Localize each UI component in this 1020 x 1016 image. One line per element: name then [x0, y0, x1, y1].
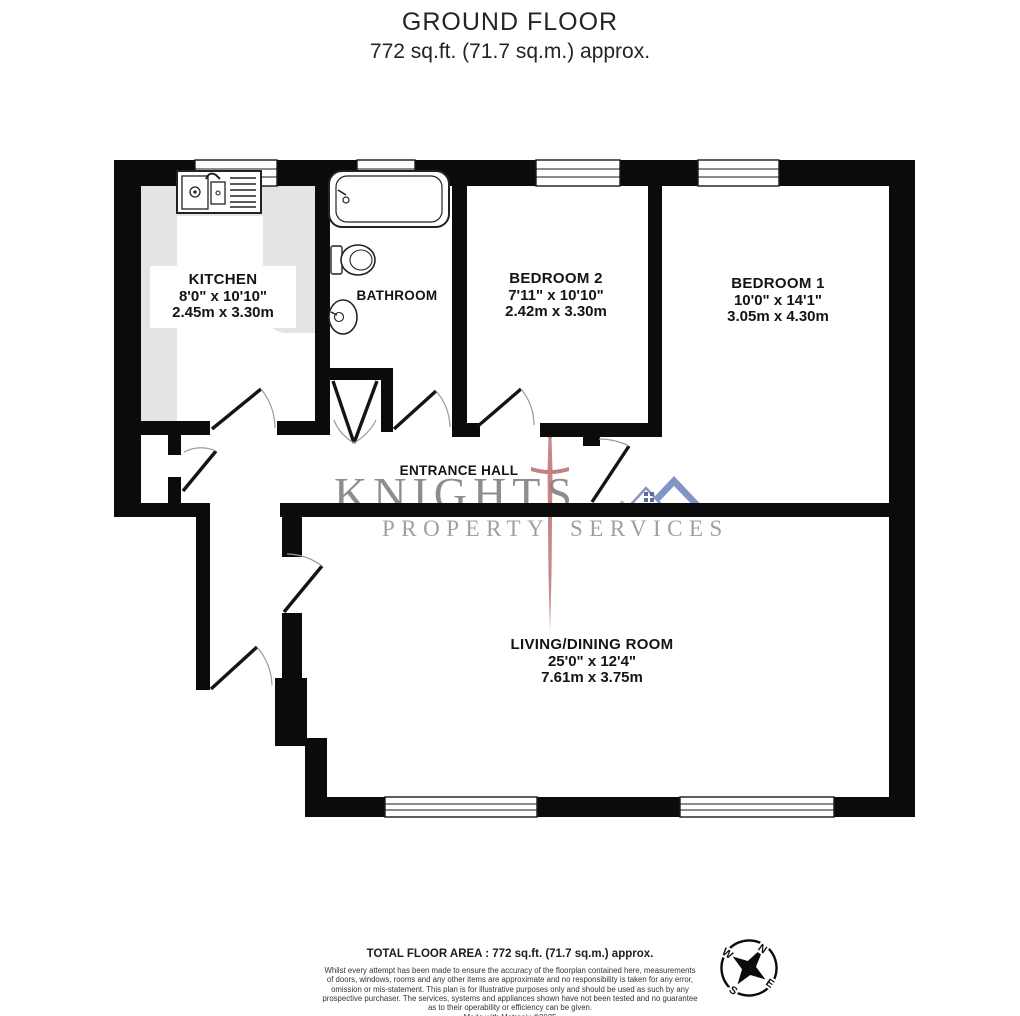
floor-area-subtitle: 772 sq.ft. (71.7 sq.m.) approx. — [370, 40, 650, 64]
compass-east-label: E — [763, 977, 776, 991]
living-window-left — [385, 797, 537, 817]
disclaimer-line: of doors, windows, rooms and any other i… — [270, 975, 750, 984]
room-label-entrance-hall: ENTRANCE HALL — [400, 463, 519, 480]
total-floor-area: TOTAL FLOOR AREA : 772 sq.ft. (71.7 sq.m… — [270, 948, 750, 960]
floorplan-page: KNIGHTS PROPERTY SERVICES — [0, 0, 1020, 1016]
hall-cupboard-door — [183, 448, 216, 491]
walls — [114, 160, 915, 817]
kitchen-sink-icon — [177, 171, 261, 213]
bathtub-icon — [329, 171, 449, 227]
floor-title: GROUND FLOOR — [370, 8, 650, 37]
disclaimer-line: omission or mis-statement. This plan is … — [270, 985, 750, 994]
plan-structure-layer: N E S W — [0, 0, 1020, 1016]
kitchen-door — [212, 389, 275, 429]
basin-icon — [329, 300, 357, 334]
disclaimer-line: as to their operability or efficiency ca… — [270, 1003, 750, 1012]
living-room-door-lower — [211, 647, 272, 689]
disclaimer-line: Whilst every attempt has been made to en… — [270, 966, 750, 975]
living-window-right — [680, 797, 834, 817]
page-title: GROUND FLOOR 772 sq.ft. (71.7 sq.m.) app… — [370, 8, 650, 64]
room-label-bedroom1: BEDROOM 1 10'0" x 14'1" 3.05m x 4.30m — [727, 276, 829, 326]
bedroom1-door — [592, 439, 629, 502]
bedroom2-door — [478, 389, 534, 426]
room-label-living-dining: LIVING/DINING ROOM 25'0" x 12'4" 7.61m x… — [511, 637, 674, 687]
room-label-kitchen: KITCHEN 8'0" x 10'10" 2.45m x 3.30m — [172, 272, 274, 322]
living-room-door-upper — [284, 554, 322, 612]
footer: TOTAL FLOOR AREA : 772 sq.ft. (71.7 sq.m… — [270, 948, 750, 1016]
room-label-bedroom2: BEDROOM 2 7'11" x 10'10" 2.42m x 3.30m — [505, 271, 607, 321]
disclaimer-line: prospective purchaser. The services, sys… — [270, 994, 750, 1003]
bedroom2-window — [536, 160, 620, 186]
bathroom-door — [394, 391, 450, 429]
bedroom1-window — [698, 160, 779, 186]
toilet-icon — [331, 245, 375, 275]
airing-cupboard-door — [333, 381, 377, 443]
room-label-bathroom: BATHROOM — [357, 288, 438, 305]
